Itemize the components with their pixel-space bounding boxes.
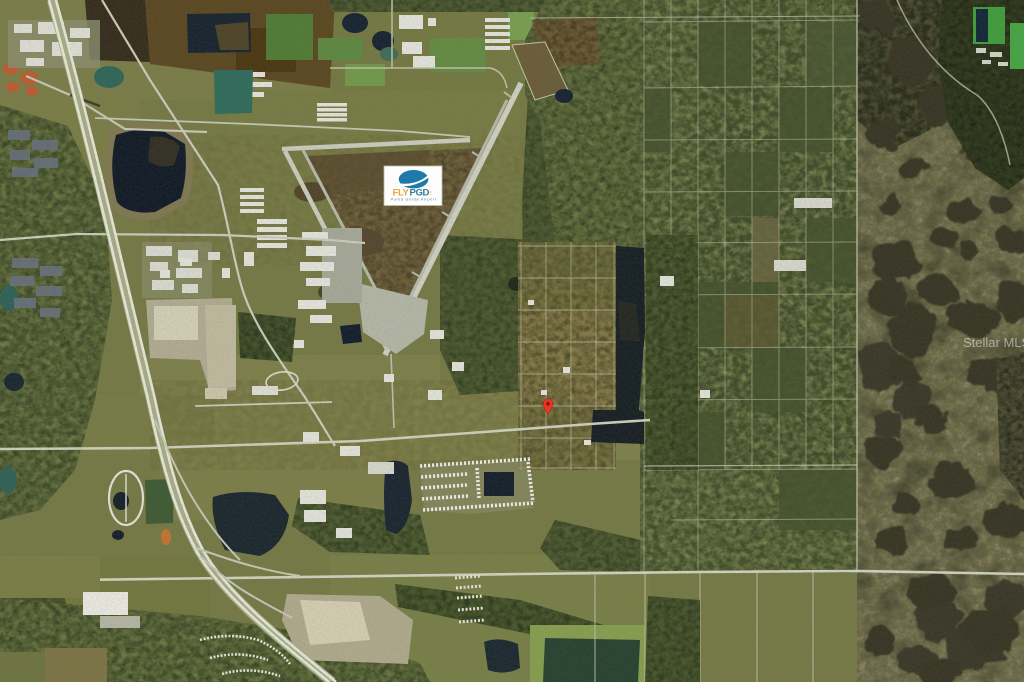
svg-text:Punta Gorda Airport: Punta Gorda Airport	[391, 198, 437, 202]
svg-text:Stellar MLS: Stellar MLS	[963, 335, 1024, 350]
